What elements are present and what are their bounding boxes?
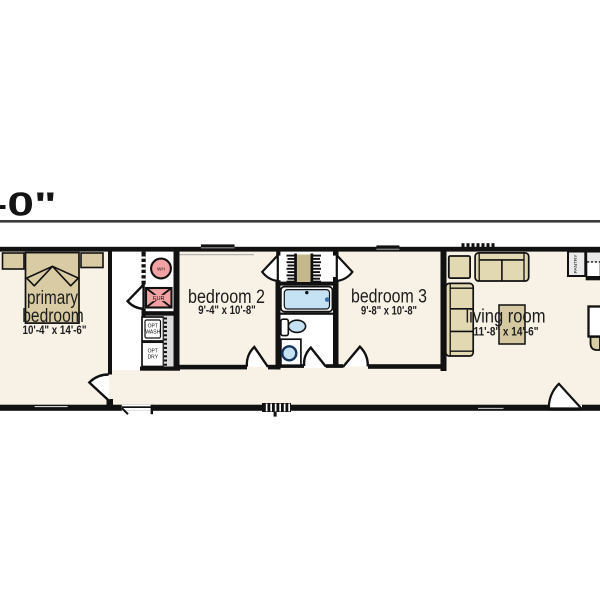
svg-text:bedroom 3: bedroom 3 xyxy=(351,286,427,307)
svg-text:9'-4" x 10'-8": 9'-4" x 10'-8" xyxy=(198,305,256,317)
svg-text:-0": -0" xyxy=(0,186,57,223)
svg-text:WASH: WASH xyxy=(145,330,160,336)
svg-text:11'-8" x 14'-6": 11'-8" x 14'-6" xyxy=(474,327,539,339)
svg-text:10'-4" x 14'-6": 10'-4" x 14'-6" xyxy=(23,325,87,337)
svg-text:living room: living room xyxy=(466,306,546,327)
svg-text:9'-8" x 10'-8": 9'-8" x 10'-8" xyxy=(361,306,417,318)
svg-text:FUR: FUR xyxy=(153,296,165,302)
svg-text:bedroom: bedroom xyxy=(22,306,84,327)
svg-text:WH: WH xyxy=(157,266,165,271)
svg-text:PANTRY: PANTRY xyxy=(573,254,579,274)
svg-text:DRY: DRY xyxy=(148,355,159,361)
